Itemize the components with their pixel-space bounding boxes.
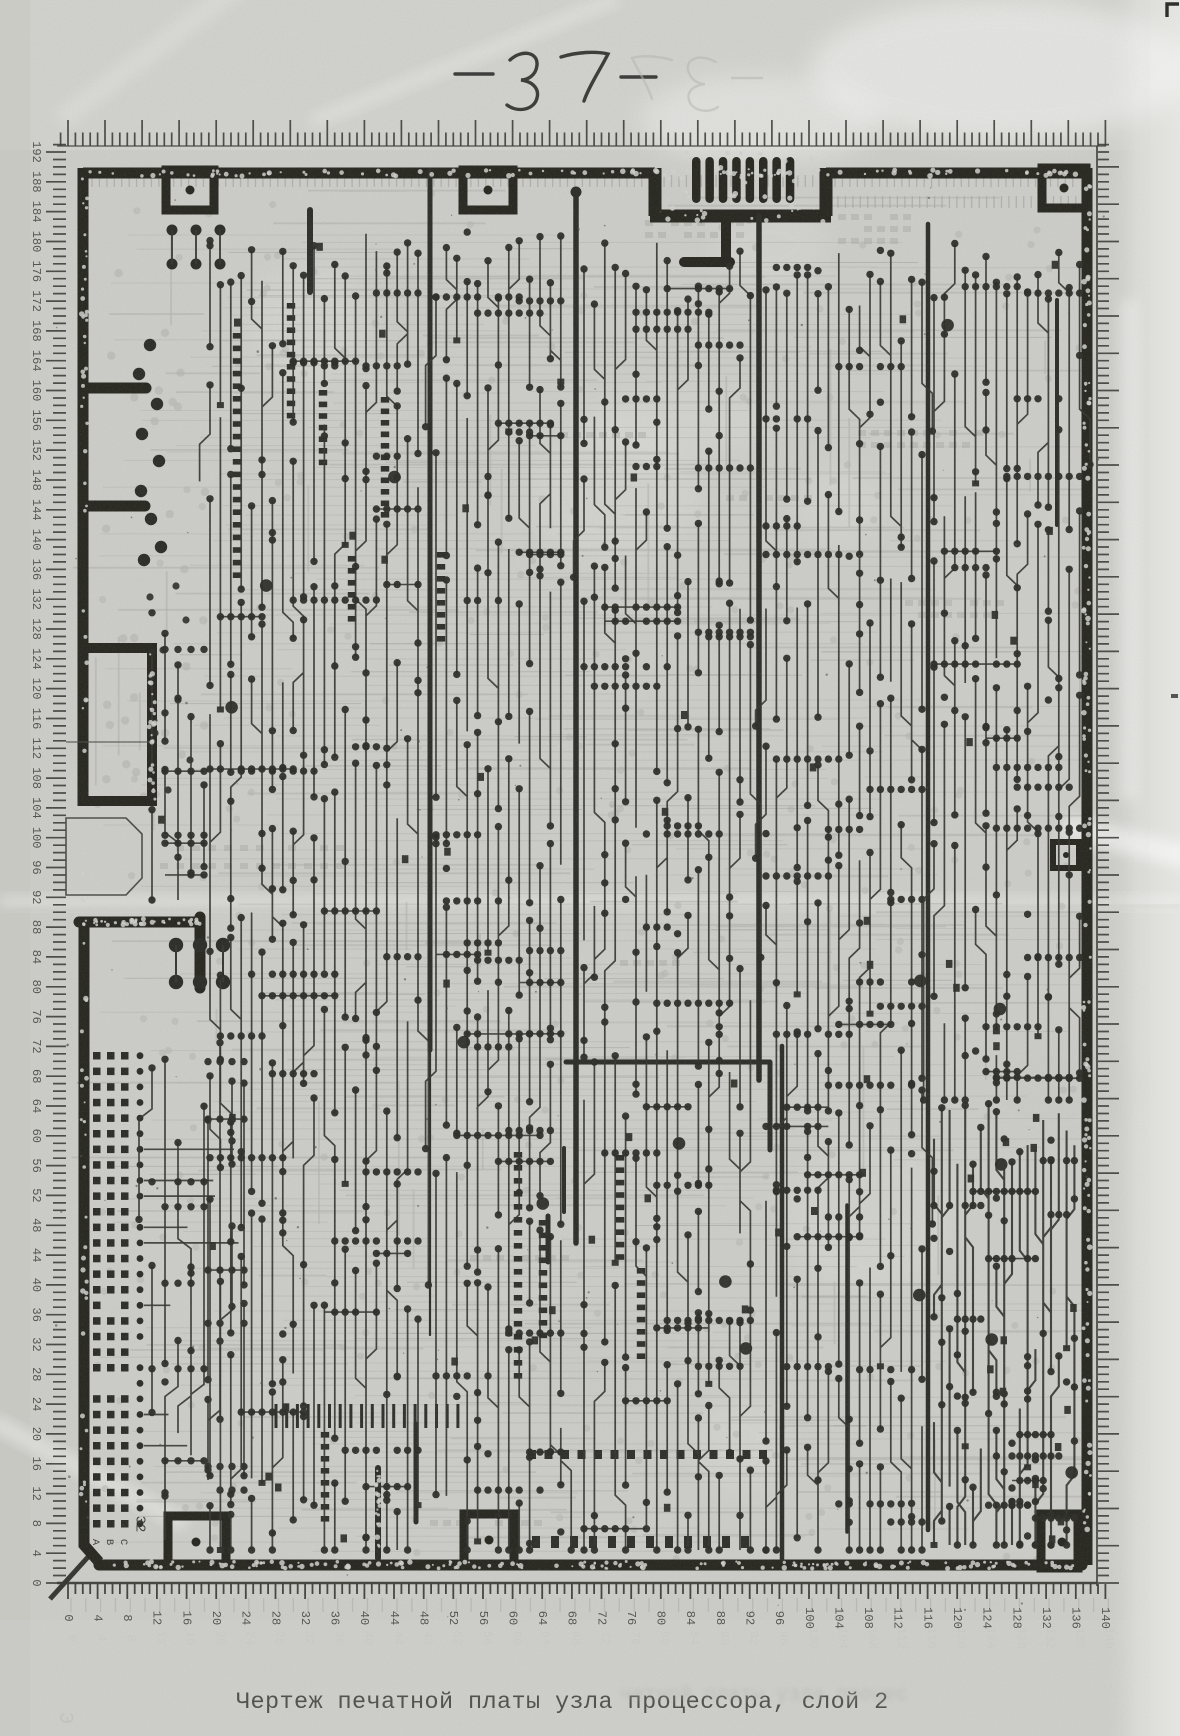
svg-text:четной платы узла процес: четной платы узла процес xyxy=(620,1684,908,1707)
svg-text:Э: Э xyxy=(53,1712,76,1724)
